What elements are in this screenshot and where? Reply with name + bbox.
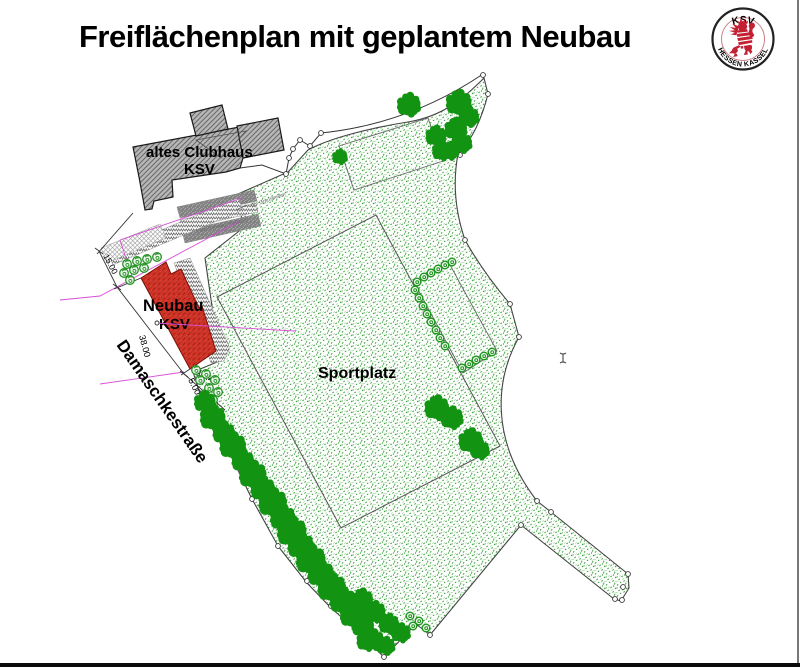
svg-text:Sportplatz: Sportplatz [318,365,396,382]
svg-text:altes Clubhaus: altes Clubhaus [146,144,253,161]
svg-text:Neubau: Neubau [143,297,204,315]
svg-text:KSV: KSV [184,161,215,178]
